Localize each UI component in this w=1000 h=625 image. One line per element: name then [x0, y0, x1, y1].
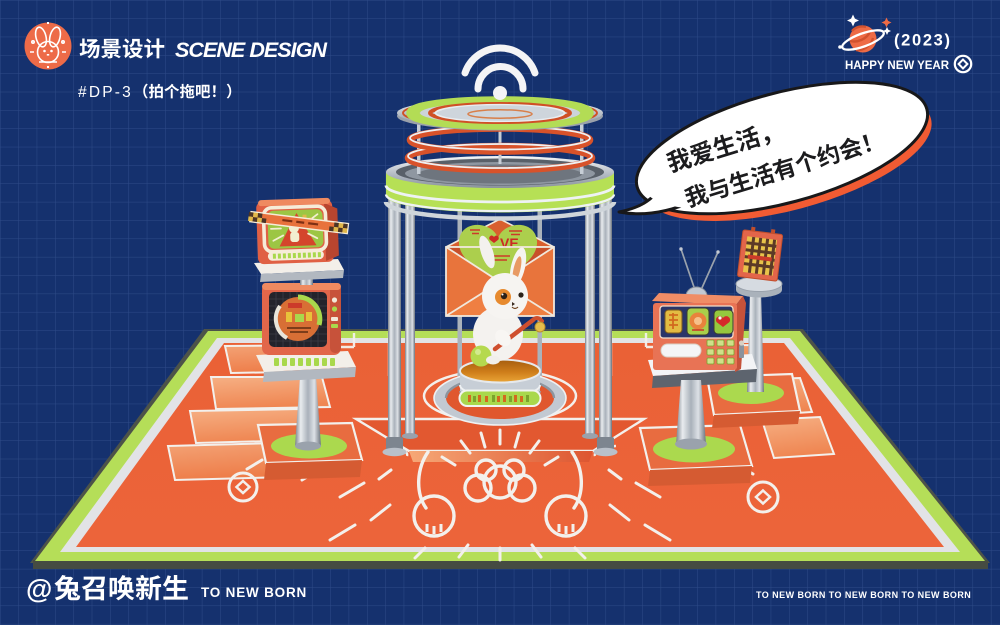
svg-text:@: @	[26, 574, 52, 604]
svg-text:(2023): (2023)	[894, 32, 950, 50]
svg-text:TO NEW BORN: TO NEW BORN	[201, 585, 307, 600]
svg-text:HAPPY NEW YEAR: HAPPY NEW YEAR	[845, 60, 950, 72]
svg-text:#DP-3: #DP-3	[78, 84, 133, 101]
svg-text:VE: VE	[500, 235, 519, 251]
svg-text:SCENE DESIGN: SCENE DESIGN	[175, 38, 327, 62]
svg-text:TO NEW BORN TO NEW BORN TO NEW: TO NEW BORN TO NEW BORN TO NEW BORN	[756, 590, 971, 600]
